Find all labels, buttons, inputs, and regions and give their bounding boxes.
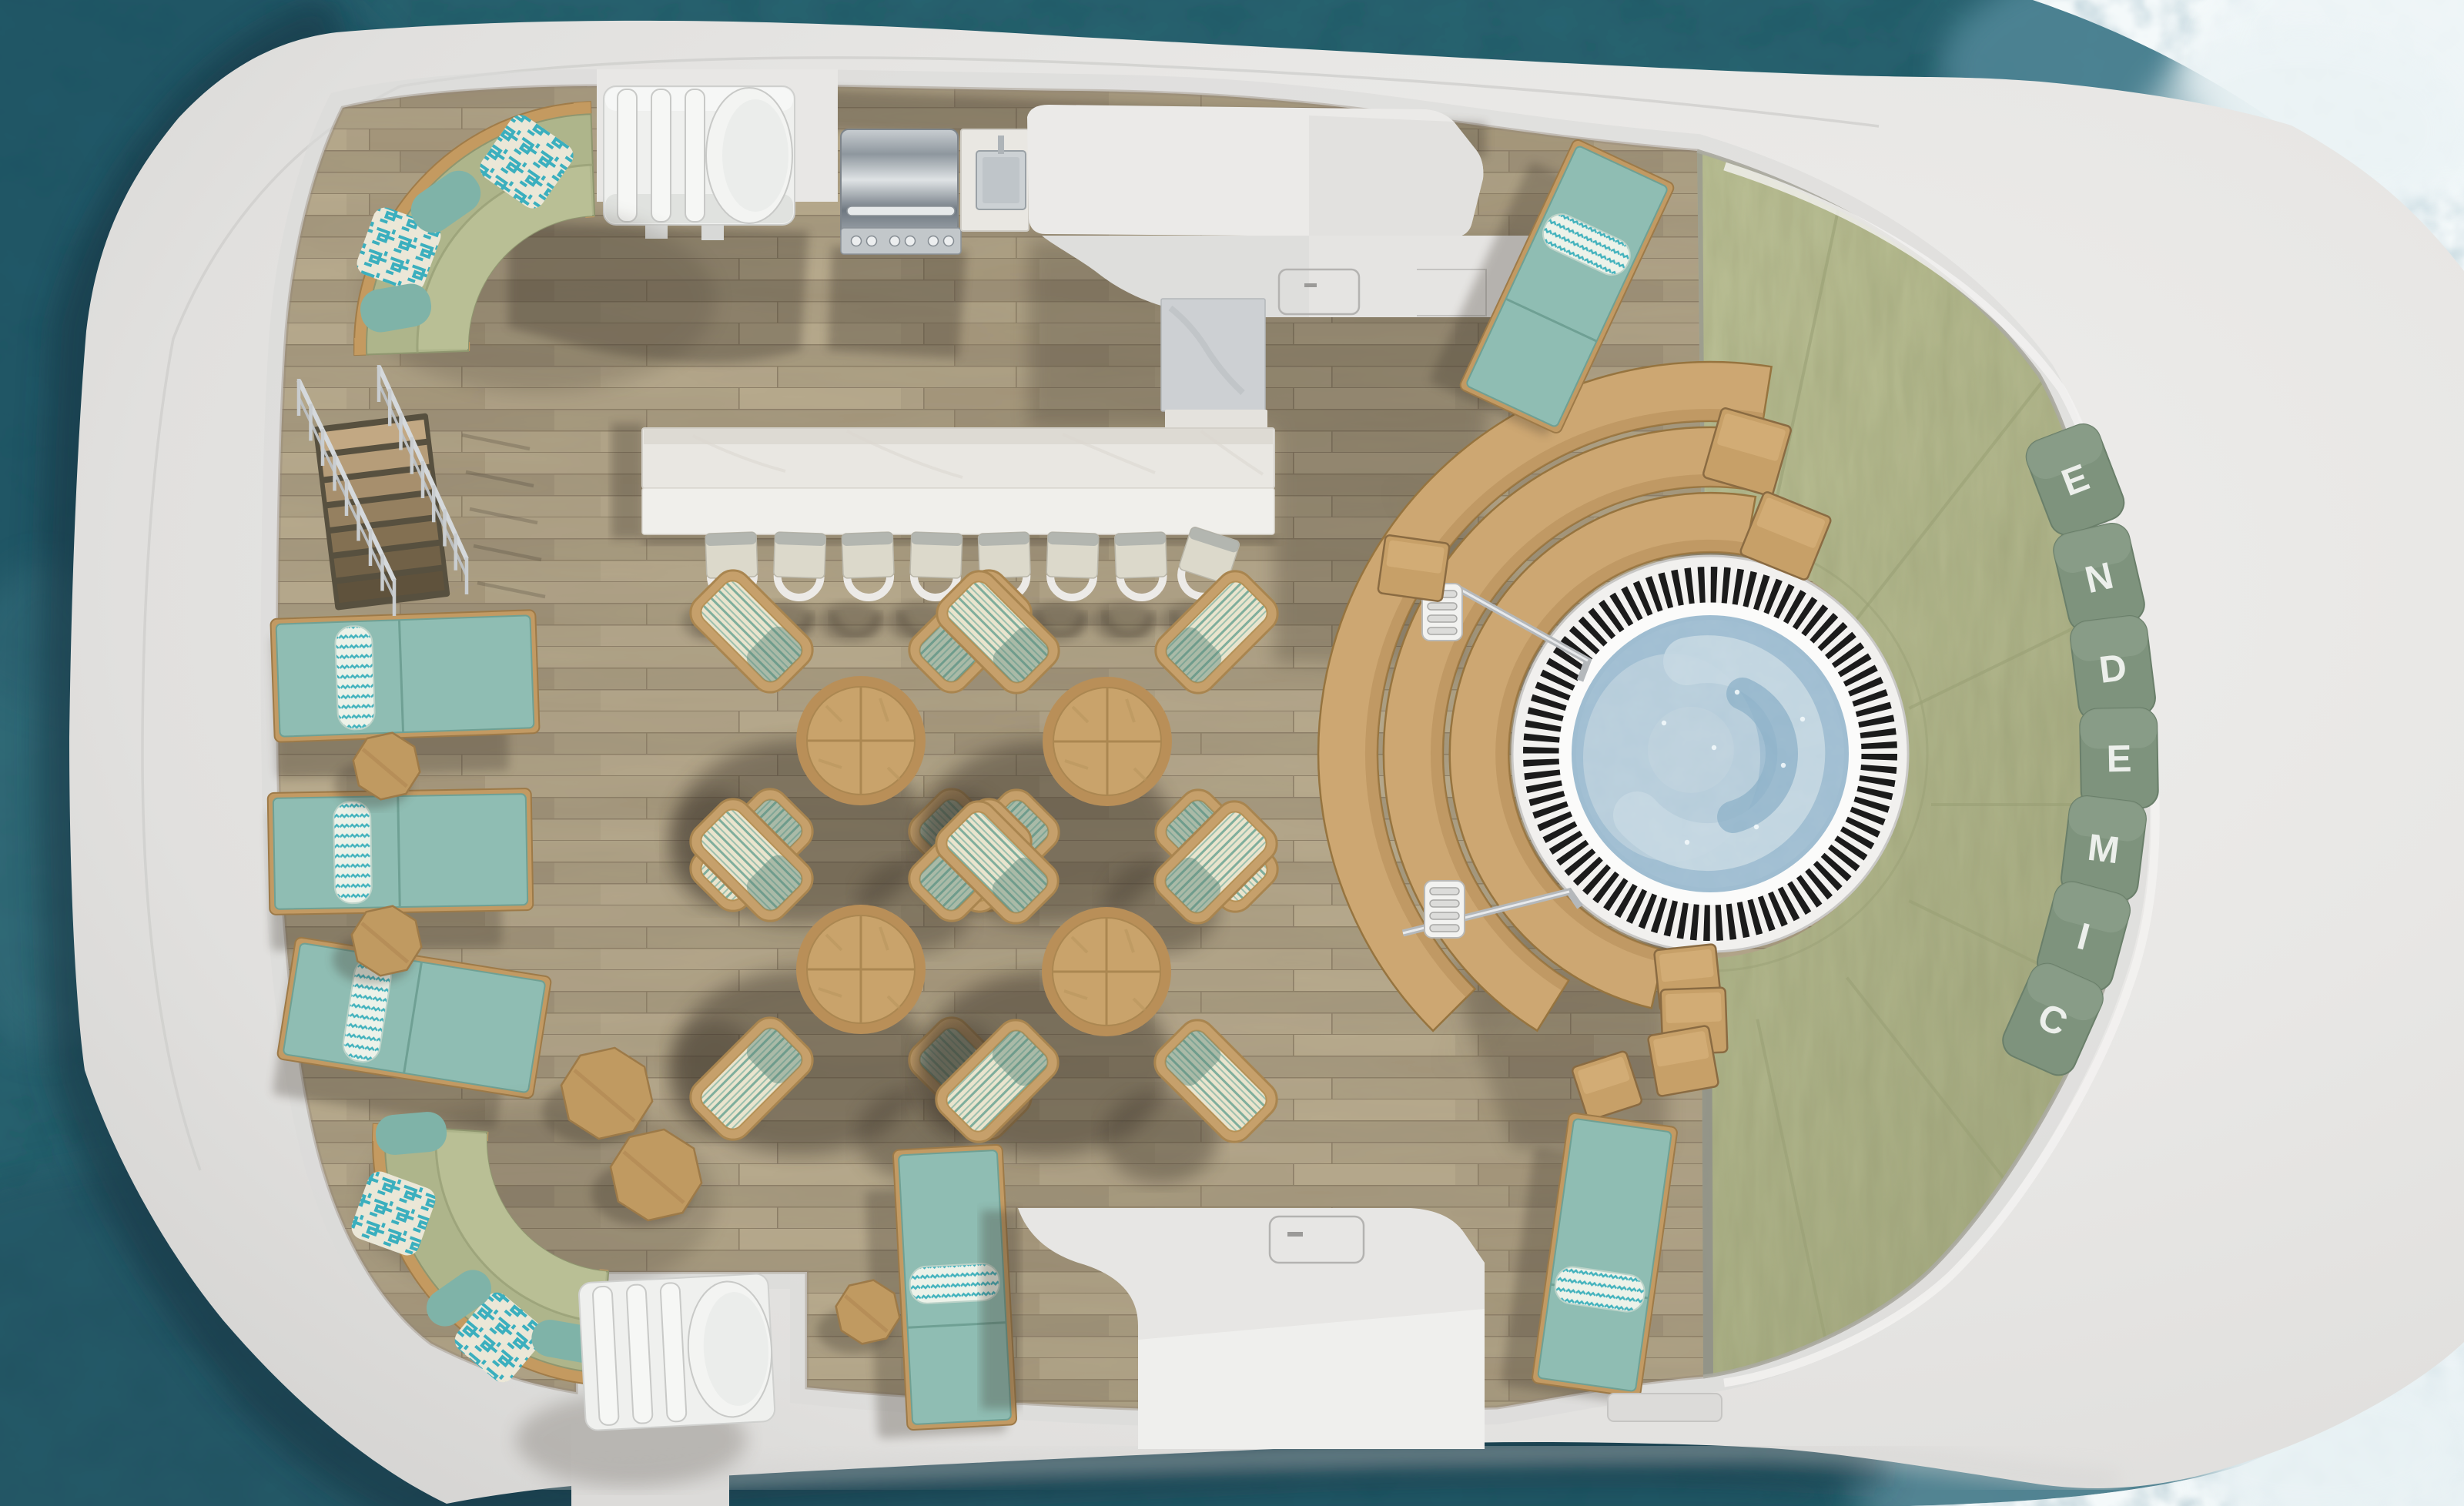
svg-text:D: D bbox=[2097, 647, 2129, 691]
svg-text:M: M bbox=[2085, 827, 2121, 872]
svg-text:E: E bbox=[2106, 738, 2132, 781]
